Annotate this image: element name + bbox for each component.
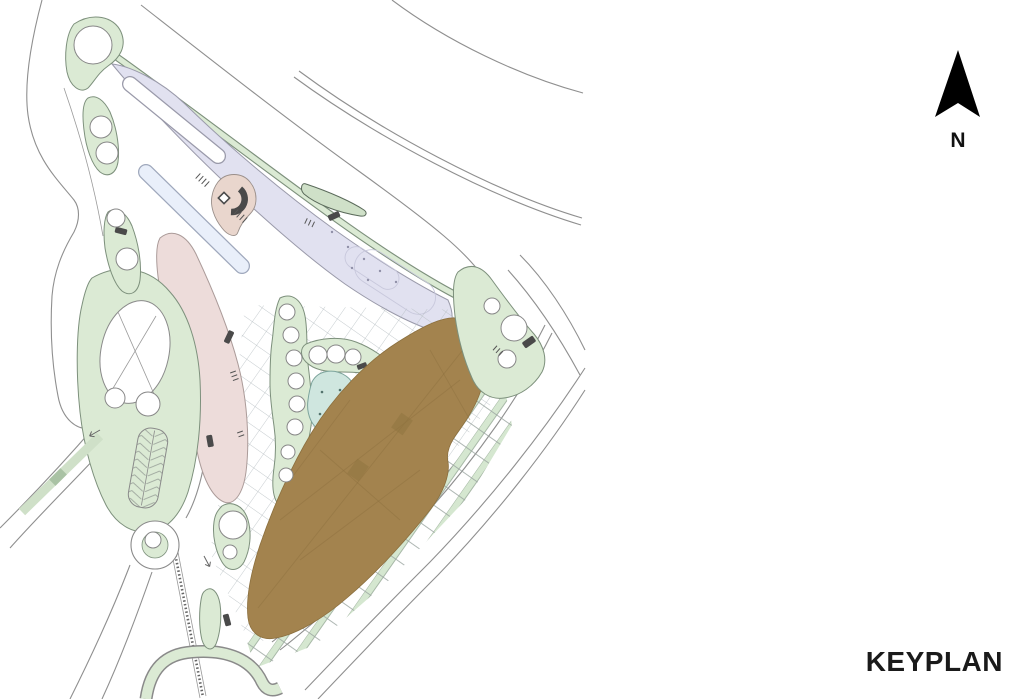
pond-dot bbox=[321, 391, 324, 394]
north-label: N bbox=[950, 129, 965, 152]
tree bbox=[223, 545, 237, 559]
tree bbox=[327, 345, 345, 363]
striped-lane-edge-a bbox=[171, 549, 200, 698]
tree bbox=[281, 445, 295, 459]
tree bbox=[345, 349, 361, 365]
tree bbox=[116, 248, 138, 270]
road-south-a bbox=[70, 565, 130, 699]
dot bbox=[347, 246, 349, 248]
dot bbox=[379, 270, 381, 272]
pond-dot bbox=[339, 389, 342, 392]
southwest-median bbox=[22, 436, 100, 512]
tree bbox=[136, 392, 160, 416]
tree bbox=[279, 468, 293, 482]
tree bbox=[145, 532, 161, 548]
tree bbox=[289, 396, 305, 412]
north-indicator: N bbox=[935, 50, 980, 152]
site-plan-drawing: N KEYPLAN bbox=[0, 0, 1024, 699]
striped-lane-marking bbox=[174, 548, 203, 697]
tree bbox=[283, 327, 299, 343]
pond-dot bbox=[319, 413, 322, 416]
south-green-sliver bbox=[200, 589, 221, 649]
dot bbox=[351, 267, 353, 269]
tree bbox=[105, 388, 125, 408]
road-curve-upper-a bbox=[299, 71, 582, 218]
pavilion-feature bbox=[211, 175, 256, 236]
tree bbox=[309, 346, 327, 364]
dot bbox=[363, 258, 365, 260]
tree bbox=[96, 142, 118, 164]
tree bbox=[219, 511, 247, 539]
dot bbox=[395, 281, 397, 283]
road-southwest-a bbox=[0, 425, 96, 528]
tree bbox=[498, 350, 516, 368]
traffic-arrow bbox=[201, 555, 212, 568]
pavilion-blob bbox=[211, 175, 256, 236]
keyplan-page: N KEYPLAN bbox=[0, 0, 1024, 699]
tree bbox=[107, 209, 125, 227]
tree bbox=[288, 373, 304, 389]
tree bbox=[279, 304, 295, 320]
tree bbox=[74, 26, 112, 64]
tree bbox=[287, 419, 303, 435]
keyplan-title: KEYPLAN bbox=[866, 646, 1003, 677]
tree bbox=[90, 116, 112, 138]
bus-shelter-marker bbox=[223, 613, 232, 626]
north-arrow-icon bbox=[935, 50, 980, 117]
tree bbox=[484, 298, 500, 314]
stair-ticks bbox=[196, 173, 210, 186]
tree bbox=[501, 315, 527, 341]
dot bbox=[331, 231, 333, 233]
road-curve-top bbox=[392, 0, 583, 93]
tree bbox=[286, 350, 302, 366]
dot bbox=[367, 279, 369, 281]
